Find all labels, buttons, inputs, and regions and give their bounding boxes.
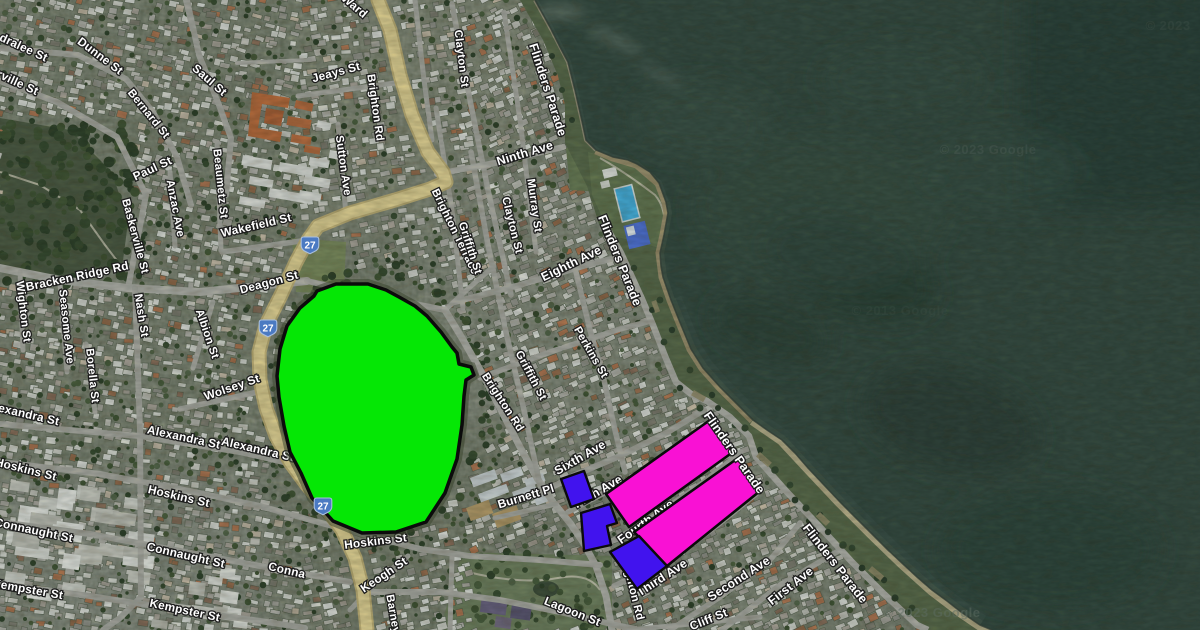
svg-text:© 2023: © 2023 bbox=[1145, 18, 1190, 33]
svg-text:© 2023 Google: © 2023 Google bbox=[940, 142, 1037, 157]
svg-text:© 2013 Google: © 2013 Google bbox=[852, 303, 949, 318]
svg-text:27: 27 bbox=[317, 502, 329, 513]
svg-text:27: 27 bbox=[304, 241, 316, 252]
svg-text:© 2023 Google: © 2023 Google bbox=[884, 605, 981, 620]
svg-text:27: 27 bbox=[262, 324, 274, 335]
